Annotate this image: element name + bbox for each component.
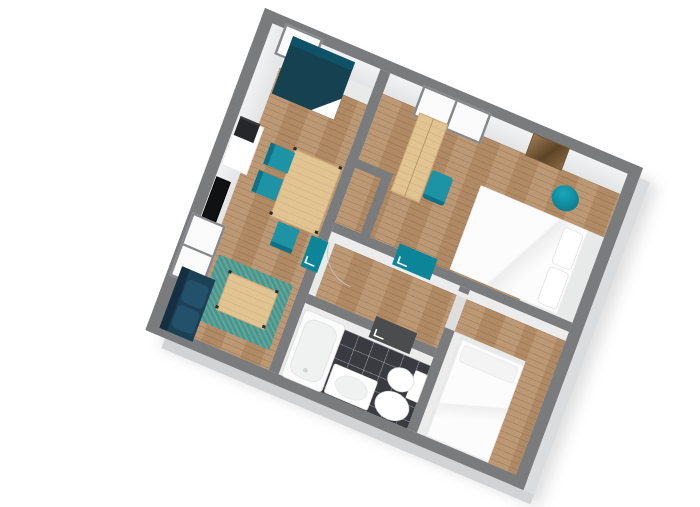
door-handle-icon xyxy=(397,256,409,267)
table-leg xyxy=(293,147,297,151)
door-handle-icon xyxy=(373,329,385,340)
floor-plan-canvas: { "scene": { "description": "3D isometri… xyxy=(0,0,700,500)
table-leg xyxy=(228,270,232,274)
door-handle-icon xyxy=(304,256,316,267)
window-divider xyxy=(183,243,213,257)
